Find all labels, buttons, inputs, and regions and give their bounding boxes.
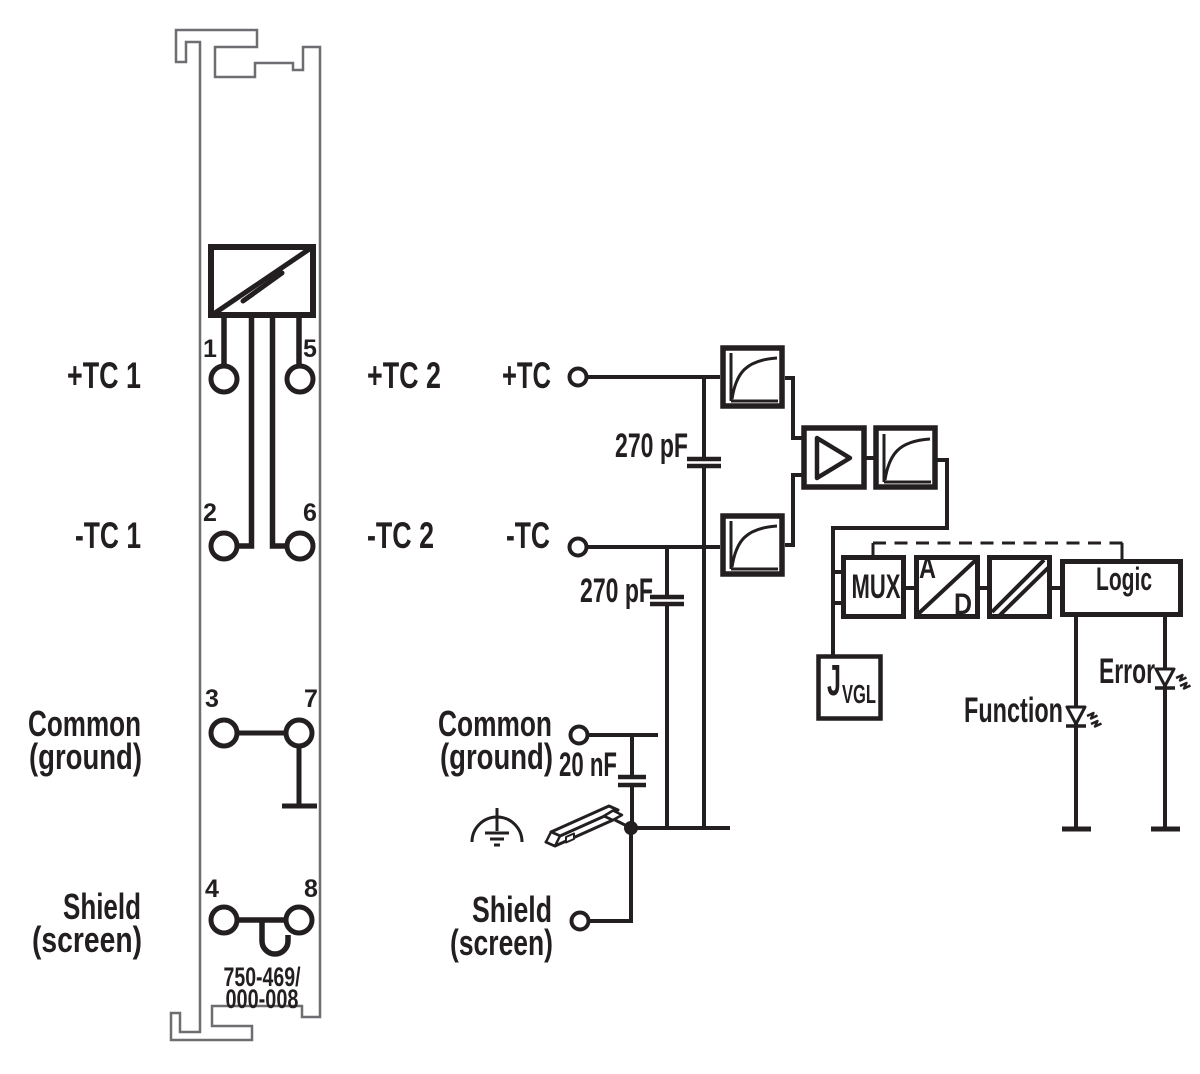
pin-6-number: 6 <box>303 499 317 527</box>
module-part-number-line2: 000-008 <box>226 984 299 1014</box>
filter-block-3 <box>876 428 935 487</box>
jvgl-label-main: J <box>827 656 841 705</box>
pin-3-circle <box>211 720 237 746</box>
label-shield-module-line2: (screen) <box>32 919 142 960</box>
isolation-block <box>990 558 1050 617</box>
logic-block: Logic <box>1063 561 1181 615</box>
term-label-common-line2: (ground) <box>440 736 553 777</box>
wiring-diagram: 1 5 2 6 3 7 4 8 +TC 1 -TC 1 Common (grou… <box>0 0 1200 1074</box>
pin-1-number: 1 <box>203 335 217 363</box>
terminal-tc-minus <box>570 539 587 556</box>
amplifier-box <box>804 428 864 487</box>
pin-6-circle <box>287 533 313 559</box>
logic-label: Logic <box>1096 561 1152 597</box>
jvgl-label-sub: VGL <box>842 679 876 709</box>
amplifier-block <box>804 428 864 487</box>
function-led-label: Function <box>964 691 1063 730</box>
pin-5-circle <box>287 366 313 392</box>
wiring-diagram-page: 1 5 2 6 3 7 4 8 +TC 1 -TC 1 Common (grou… <box>0 0 1200 1074</box>
pin-2-number: 2 <box>203 499 217 527</box>
error-led-label: Error <box>1099 652 1155 691</box>
module-isolation-block <box>211 247 313 315</box>
junction-dot <box>624 821 638 835</box>
pin-2-circle <box>211 533 237 559</box>
label-tc1-plus: +TC 1 <box>67 355 141 396</box>
pin-7-circle <box>286 720 312 746</box>
terminal-tc-plus <box>570 369 587 386</box>
pin-8-circle <box>286 907 312 933</box>
adc-label-d: D <box>954 588 972 621</box>
label-tc1-minus: -TC 1 <box>75 515 141 556</box>
terminal-shield <box>572 913 589 930</box>
background <box>0 0 1200 1074</box>
pin-1-circle <box>211 366 237 392</box>
pin-3-number: 3 <box>205 685 219 713</box>
mux-block: MUX <box>844 558 904 617</box>
label-tc2-plus: +TC 2 <box>367 355 441 396</box>
cap2-label: 270 pF <box>580 572 653 610</box>
pin-8-number: 8 <box>304 875 318 903</box>
jvgl-block: J VGL <box>819 656 881 719</box>
term-label-tc-plus: +TC <box>502 355 551 396</box>
label-tc2-minus: -TC 2 <box>367 515 434 556</box>
adc-block: A D <box>917 552 978 621</box>
cap3-label: 20 nF <box>559 746 617 784</box>
mux-label: MUX <box>852 568 901 606</box>
filter-block-2 <box>723 516 782 574</box>
pin-5-number: 5 <box>303 335 317 363</box>
pin-4-number: 4 <box>205 875 219 903</box>
terminal-common <box>571 727 588 744</box>
adc-label-a: A <box>919 552 936 585</box>
filter-block-1 <box>723 348 782 406</box>
term-label-tc-minus: -TC <box>506 515 550 556</box>
pin-7-number: 7 <box>304 685 318 713</box>
label-common-module-line2: (ground) <box>29 736 142 777</box>
term-label-shield-line2: (screen) <box>450 922 553 963</box>
cap1-label: 270 pF <box>615 427 688 465</box>
pin-4-circle <box>211 907 237 933</box>
